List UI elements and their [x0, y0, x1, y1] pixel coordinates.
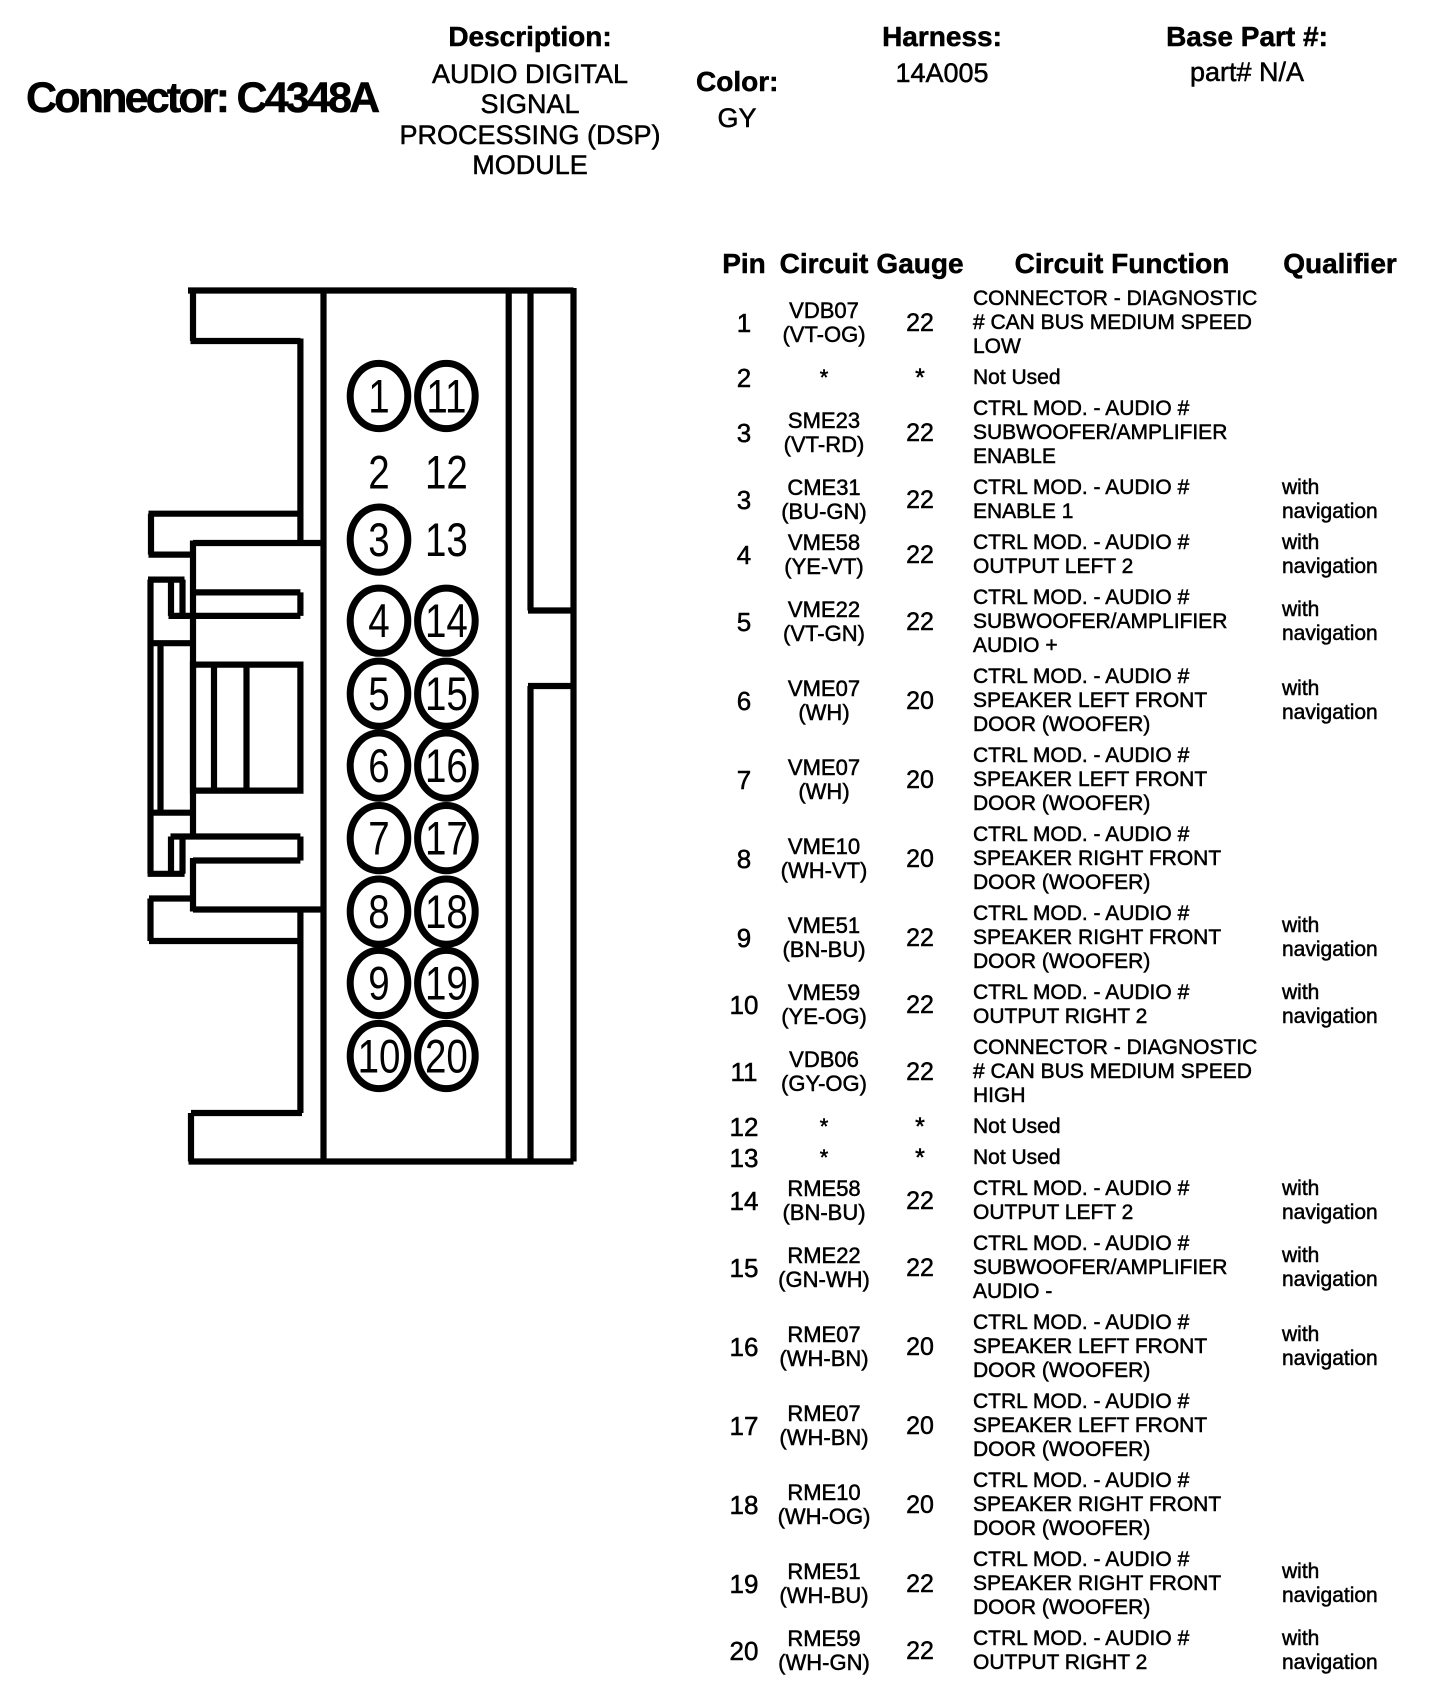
svg-text:10: 10	[358, 1031, 401, 1083]
svg-text:3: 3	[368, 515, 389, 567]
svg-text:11: 11	[426, 371, 466, 423]
svg-text:12: 12	[425, 447, 468, 499]
svg-text:7: 7	[368, 813, 389, 865]
svg-text:2: 2	[368, 447, 389, 499]
svg-text:17: 17	[425, 813, 468, 865]
svg-text:6: 6	[368, 741, 389, 793]
svg-text:15: 15	[425, 669, 468, 721]
svg-text:14: 14	[425, 596, 468, 648]
svg-text:5: 5	[368, 669, 389, 721]
svg-text:20: 20	[425, 1031, 468, 1083]
svg-text:18: 18	[425, 887, 468, 939]
svg-text:1: 1	[368, 371, 389, 423]
svg-text:13: 13	[425, 515, 468, 567]
svg-text:8: 8	[368, 887, 389, 939]
svg-text:4: 4	[368, 596, 389, 648]
svg-text:16: 16	[425, 741, 468, 793]
svg-text:9: 9	[368, 958, 389, 1010]
svg-text:19: 19	[425, 958, 468, 1010]
